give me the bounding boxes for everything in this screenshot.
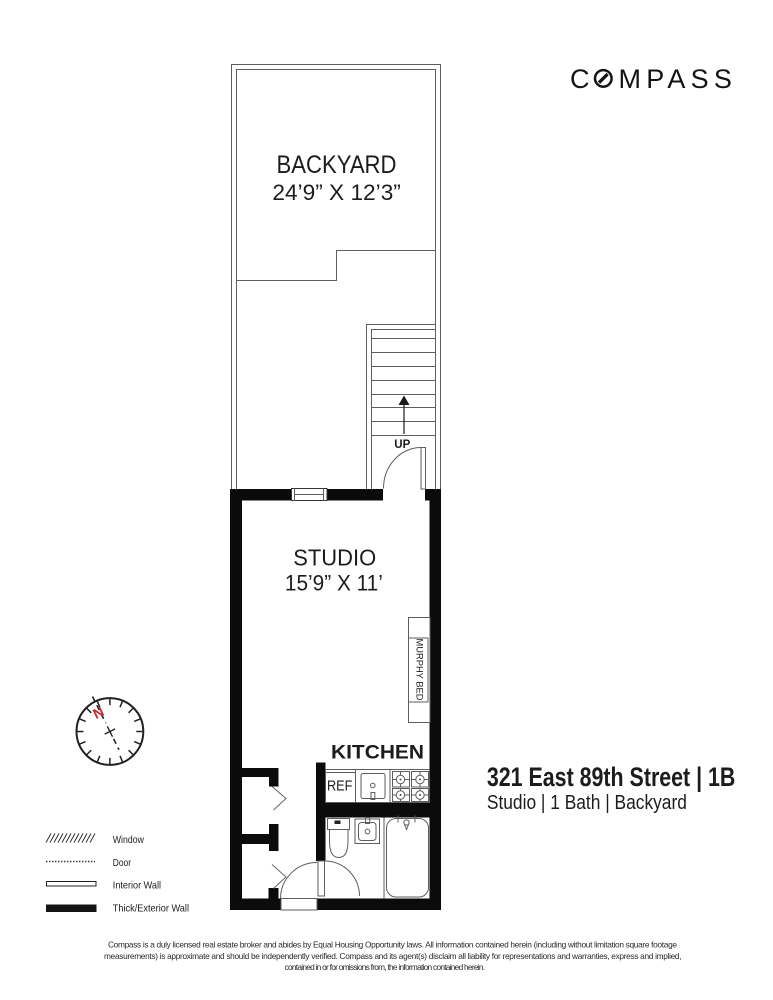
svg-text:Interior Wall: Interior Wall <box>113 880 161 892</box>
svg-text:Compass is a duly licensed rea: Compass is a duly licensed real estate b… <box>108 939 677 949</box>
svg-text:MURPHY BED: MURPHY BED <box>415 639 425 702</box>
svg-text:Studio | 1 Bath | Backyard: Studio | 1 Bath | Backyard <box>487 792 687 814</box>
svg-text:15’9” X 11’: 15’9” X 11’ <box>285 571 383 596</box>
svg-text:Window: Window <box>113 834 144 846</box>
svg-text:UP: UP <box>394 439 410 451</box>
svg-text:C: C <box>570 64 590 94</box>
svg-text:N: N <box>90 703 106 722</box>
svg-text:Door: Door <box>113 857 132 869</box>
svg-text:KITCHEN: KITCHEN <box>331 742 424 764</box>
svg-text:REF: REF <box>327 778 353 795</box>
svg-text:24’9” X 12’3”: 24’9” X 12’3” <box>272 180 401 205</box>
svg-text:MPASS: MPASS <box>619 64 738 94</box>
svg-text:contained in or for omissions: contained in or for omissions from, the … <box>285 962 486 972</box>
svg-text:321 East 89th Street | 1B: 321 East 89th Street | 1B <box>487 762 735 792</box>
svg-text:STUDIO: STUDIO <box>293 544 376 570</box>
svg-text:BACKYARD: BACKYARD <box>277 151 397 179</box>
svg-text:Thick/Exterior Wall: Thick/Exterior Wall <box>113 903 189 915</box>
svg-text:measurements) is approximate: measurements) is approximate and should … <box>104 951 682 961</box>
